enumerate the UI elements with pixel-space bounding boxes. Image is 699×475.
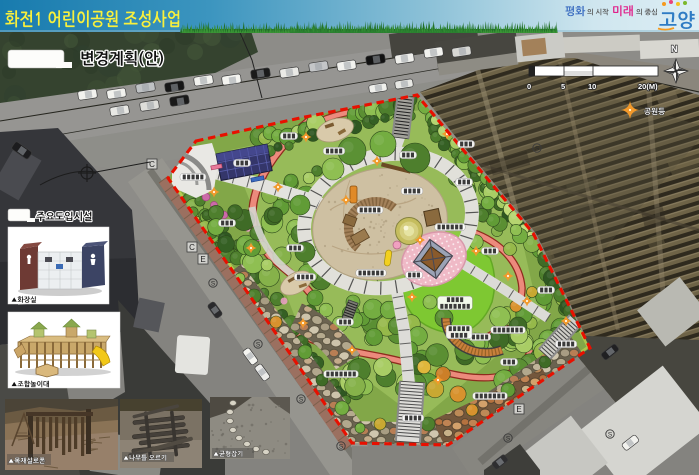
svg-text:E: E — [200, 255, 205, 264]
svg-text:0: 0 — [527, 82, 531, 91]
svg-text:5: 5 — [561, 82, 565, 91]
svg-text:S: S — [256, 342, 261, 349]
svg-text:C: C — [189, 243, 195, 252]
svg-text:C: C — [149, 160, 155, 169]
svg-text:N: N — [671, 44, 678, 54]
svg-text:20(M): 20(M) — [638, 82, 658, 91]
svg-text:S: S — [506, 436, 511, 443]
svg-text:S: S — [211, 281, 216, 288]
svg-text:10: 10 — [588, 82, 596, 91]
svg-text:S: S — [299, 397, 304, 404]
svg-text:S: S — [339, 444, 344, 451]
svg-text:S: S — [608, 432, 613, 439]
svg-text:E: E — [516, 405, 521, 414]
svg-text:S: S — [535, 146, 540, 153]
